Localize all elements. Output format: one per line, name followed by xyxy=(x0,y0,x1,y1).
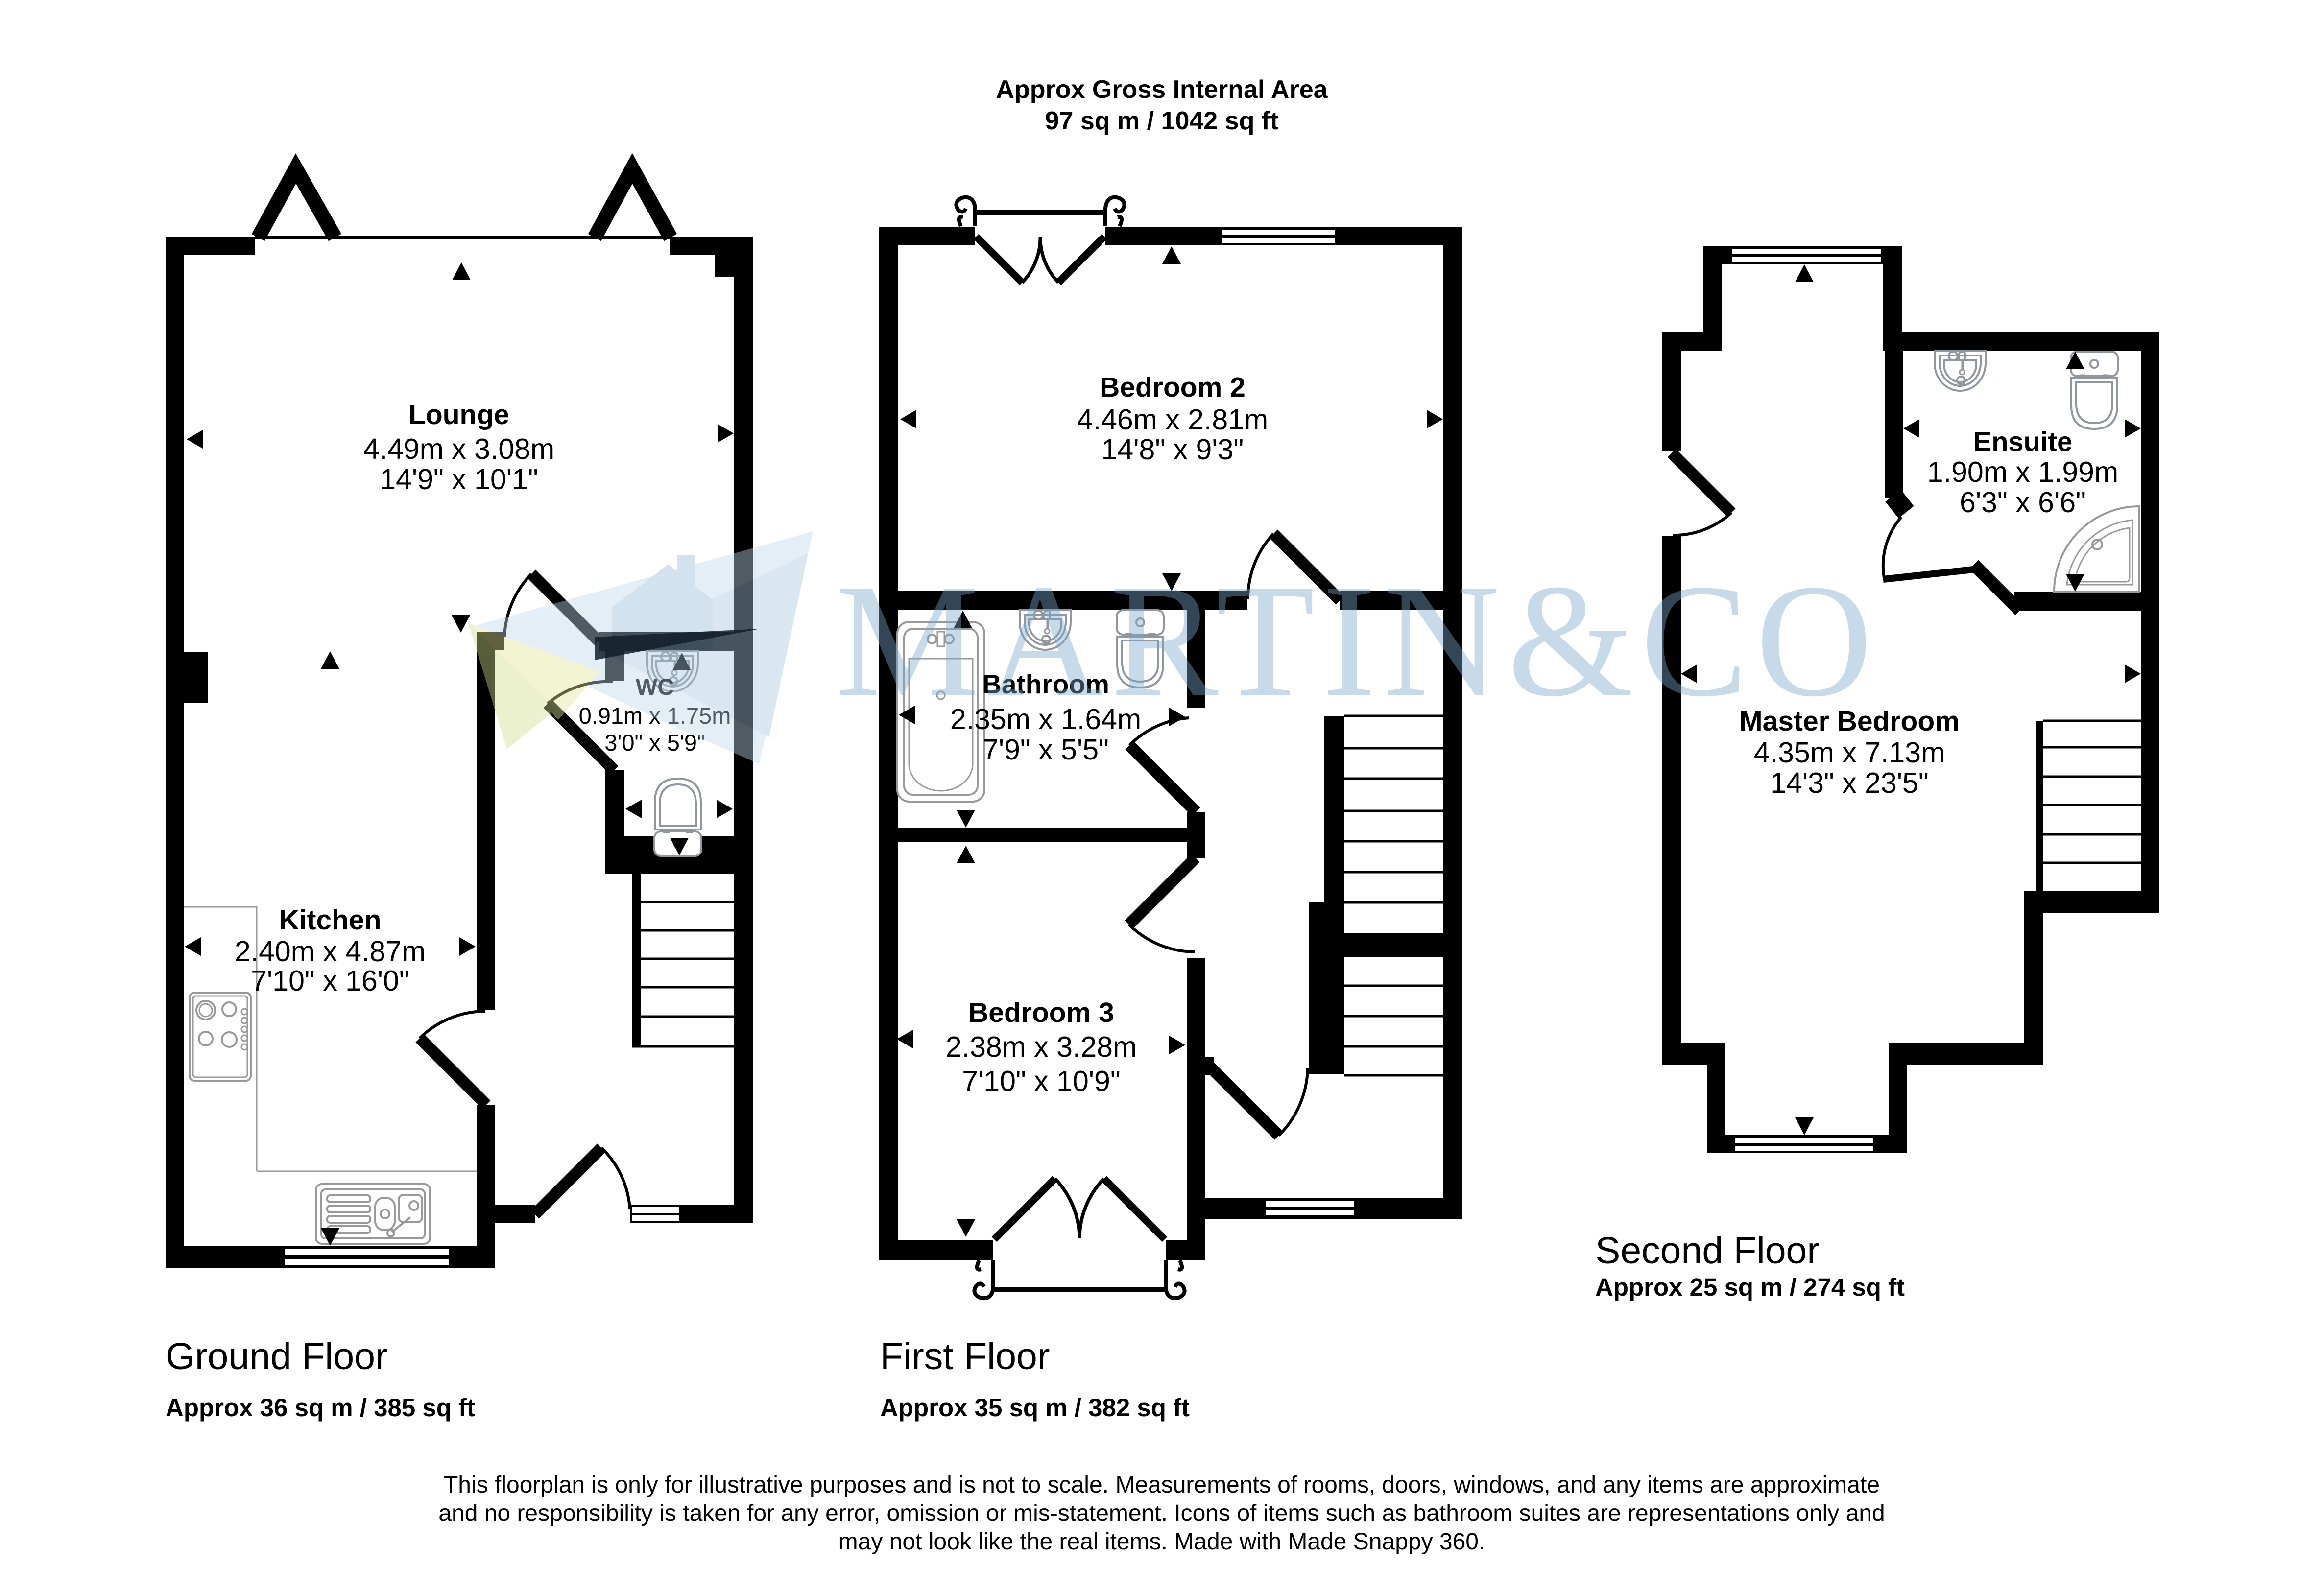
svg-text:14'8" x 9'3": 14'8" x 9'3" xyxy=(1102,433,1244,466)
svg-text:14'3" x 23'5": 14'3" x 23'5" xyxy=(1770,767,1929,799)
svg-text:may not look like the real ite: may not look like the real items. Made w… xyxy=(839,1529,1485,1555)
svg-text:7'10" x 10'9": 7'10" x 10'9" xyxy=(962,1065,1121,1097)
svg-text:This floorplan is only for ill: This floorplan is only for illustrative … xyxy=(444,1472,1880,1498)
svg-text:7'10" x 16'0": 7'10" x 16'0" xyxy=(251,965,409,997)
svg-text:Lounge: Lounge xyxy=(408,399,509,430)
svg-text:Approx Gross Internal Area: Approx Gross Internal Area xyxy=(996,75,1328,104)
svg-text:2.40m x 4.87m: 2.40m x 4.87m xyxy=(235,935,426,968)
svg-text:6'3" x 6'6": 6'3" x 6'6" xyxy=(1960,486,2086,519)
svg-text:Second Floor: Second Floor xyxy=(1595,1230,1820,1272)
svg-text:MARTIN&CO: MARTIN&CO xyxy=(836,551,1880,730)
svg-text:4.35m x 7.13m: 4.35m x 7.13m xyxy=(1754,736,1945,769)
svg-text:Bedroom 2: Bedroom 2 xyxy=(1100,372,1246,403)
svg-text:7'9" x 5'5": 7'9" x 5'5" xyxy=(982,734,1109,766)
svg-text:Approx 35 sq m / 382 sq ft: Approx 35 sq m / 382 sq ft xyxy=(880,1394,1190,1422)
svg-text:Ensuite: Ensuite xyxy=(1973,426,2072,457)
svg-text:2.38m x 3.28m: 2.38m x 3.28m xyxy=(946,1031,1137,1063)
svg-text:97 sq m / 1042 sq ft: 97 sq m / 1042 sq ft xyxy=(1045,107,1279,135)
svg-text:Kitchen: Kitchen xyxy=(279,904,381,936)
svg-text:Approx 25 sq m / 274 sq ft: Approx 25 sq m / 274 sq ft xyxy=(1595,1273,1905,1301)
svg-text:14'9" x 10'1": 14'9" x 10'1" xyxy=(380,463,538,496)
svg-text:and no responsibility is taken: and no responsibility is taken for any e… xyxy=(438,1500,1885,1526)
svg-text:1.90m x 1.99m: 1.90m x 1.99m xyxy=(1927,456,2118,488)
svg-text:3'0" x 5'9": 3'0" x 5'9" xyxy=(604,730,705,756)
svg-text:4.49m x 3.08m: 4.49m x 3.08m xyxy=(363,433,554,465)
svg-text:Bedroom 3: Bedroom 3 xyxy=(968,997,1114,1028)
svg-text:Ground Floor: Ground Floor xyxy=(166,1335,388,1377)
svg-text:4.46m x 2.81m: 4.46m x 2.81m xyxy=(1077,403,1268,436)
svg-text:First Floor: First Floor xyxy=(880,1335,1050,1377)
svg-text:Approx 36 sq m / 385 sq ft: Approx 36 sq m / 385 sq ft xyxy=(166,1394,475,1422)
